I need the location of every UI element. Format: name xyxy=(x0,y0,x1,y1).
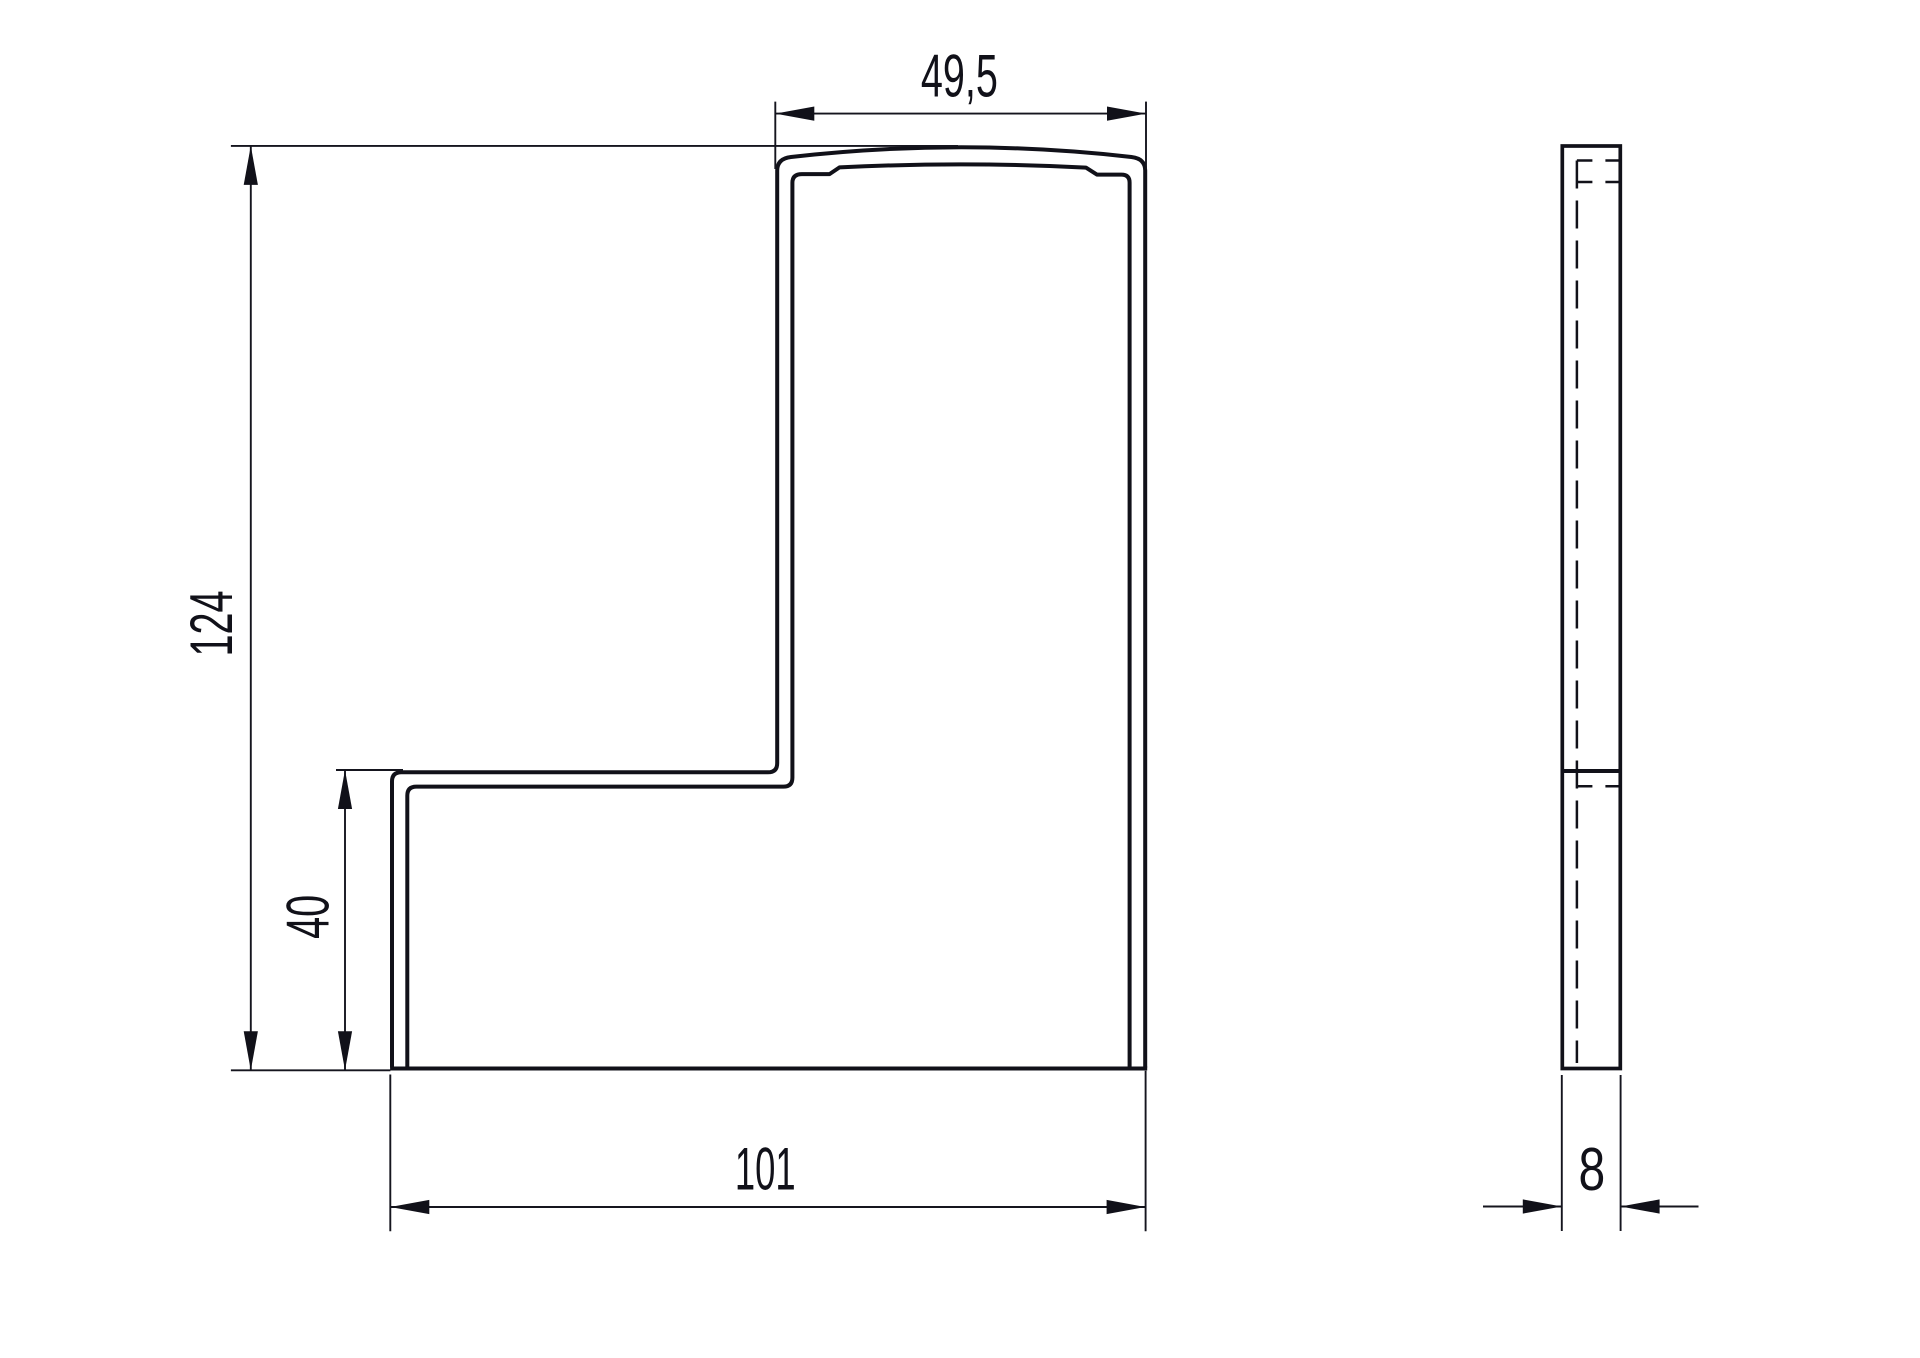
svg-text:49,5: 49,5 xyxy=(921,42,998,109)
svg-text:101: 101 xyxy=(735,1135,796,1203)
svg-text:40: 40 xyxy=(274,895,341,939)
svg-text:124: 124 xyxy=(178,590,245,656)
svg-text:8: 8 xyxy=(1579,1136,1606,1203)
